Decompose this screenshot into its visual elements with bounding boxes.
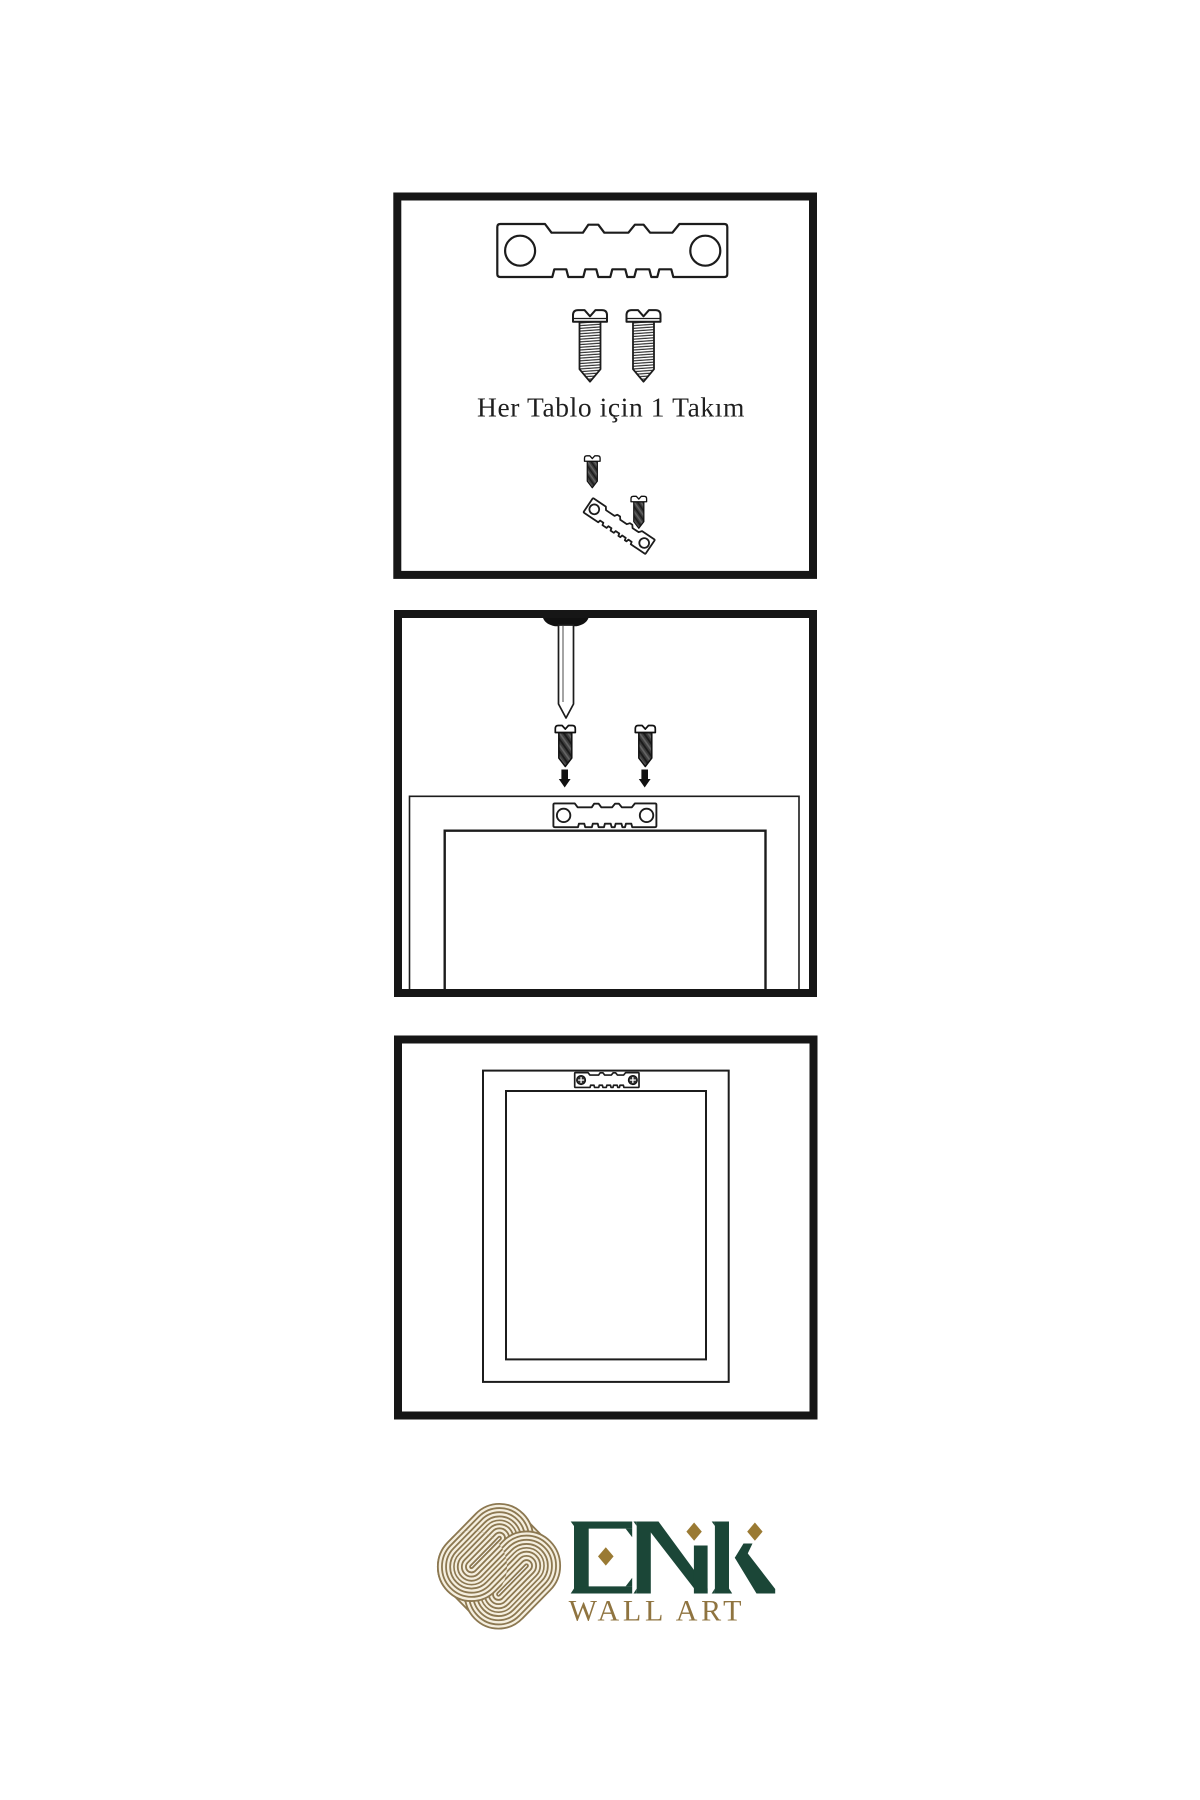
svg-text:Her Tablo için 1 Takım: Her Tablo için 1 Takım [477,392,745,423]
svg-text:WALL ART: WALL ART [569,1595,746,1628]
